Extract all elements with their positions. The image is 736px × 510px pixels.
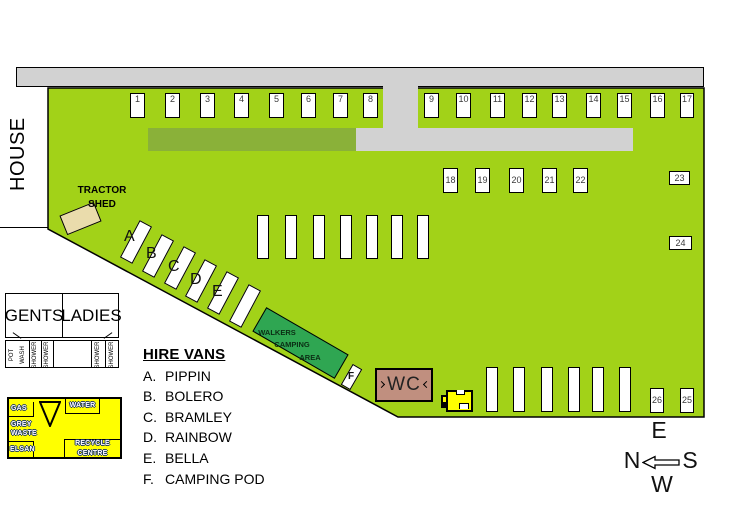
walkers-area-label: CAMPING [272,340,312,349]
pitch-10: 10 [456,93,471,118]
pitch-marker [366,215,378,259]
pitch-20: 20 [509,168,524,193]
pitch-19: 19 [475,168,490,193]
buggy-seat [456,390,465,395]
pitch-9: 9 [424,93,439,118]
pitch-6: 6 [301,93,316,118]
buggy-bed [459,403,469,409]
pitch-2: 2 [165,93,180,118]
elsan-point: ELSAN [9,441,34,457]
tractor-shed-label: TRACTOR SHED [70,184,134,211]
gravel-track [356,128,633,151]
pitch-8: 8 [363,93,378,118]
recycle-label-line1: RECYCLE [75,439,110,448]
compass-top-label: E [645,417,673,444]
shower-label: SHOWER [108,341,116,369]
pot-label: POT [8,341,16,369]
pitch-marker [391,215,403,259]
pitch-14: 14 [586,93,601,118]
pitch-5: 5 [269,93,284,118]
pitch-12: 12 [522,93,537,118]
pitch-marker [417,215,429,259]
pitch-marker [541,367,553,412]
hire-van-letter-f: F [348,371,354,382]
pitch-marker [592,367,604,412]
pitch-marker [486,367,498,412]
ladies-room-label: LADIES [63,294,120,337]
pitch-1: 1 [130,93,145,118]
cubicle-divider [105,341,106,367]
pitch-21: 21 [542,168,557,193]
house-boundary-line [0,227,48,228]
hire-van-letter-c: C [168,258,180,276]
legend-item: A.PIPPIN [143,368,265,384]
gents-room-label: GENTS [6,294,62,337]
pitch-marker [285,215,297,259]
cubicle-row: POT WASH SHOWER SHOWER SHOWER SHOWER [5,340,119,368]
pitch-11: 11 [490,93,505,118]
wc-label: WC [387,374,421,396]
legend-item: E.BELLA [143,450,265,466]
pitch-16: 16 [650,93,665,118]
cubicle-divider [29,341,30,367]
hire-van-letter-e: E [212,283,223,301]
top-road [16,67,704,87]
pitch-15: 15 [617,93,632,118]
legend-item: D.RAINBOW [143,429,265,445]
pitch-4: 4 [234,93,249,118]
shower-label: SHOWER [94,341,102,369]
buggy-icon [441,390,473,412]
hire-vans-legend: HIRE VANS A.PIPPIN B.BOLERO C.BRAMLEY D.… [143,346,265,487]
grey-waste-point: GREY WASTE [11,420,37,439]
house-label: HOUSE [7,121,29,191]
compass-right-label: S [676,447,704,474]
walkers-area-label: WALKERS [257,328,297,337]
pitch-marker [619,367,631,412]
pitch-24: 24 [669,236,692,250]
walkers-area-label: AREA [296,353,324,362]
water-label: WATER [70,401,96,410]
cubicle-divider [53,341,54,367]
water-point: WATER [65,399,100,414]
recycle-centre: RECYCLE CENTRE [64,439,120,457]
pitch-17: 17 [680,93,694,118]
vertical-road [383,85,418,130]
campsite-map: HOUSE TRACTOR SHED 1 2 3 4 5 6 7 8 9 10 … [0,0,736,510]
pitch-18: 18 [443,168,458,193]
pitch-25: 25 [680,388,694,413]
legend-item: C.BRAMLEY [143,409,265,425]
hire-van-letter-a: A [124,228,135,246]
legend-item: F.CAMPING POD [143,471,265,487]
legend-heading: HIRE VANS [143,346,265,363]
hire-van-letter-b: B [146,245,157,263]
door-notch-icon [423,381,430,388]
buggy-wheel [443,402,447,407]
drain-triangle-icon [39,401,61,427]
pitch-marker [568,367,580,412]
toilet-block: GENTS LADIES [5,293,119,338]
gas-label: GAS [11,404,27,413]
pitch-13: 13 [552,93,567,118]
legend-item: B.BOLERO [143,388,265,404]
pitch-7: 7 [333,93,348,118]
wc-block: WC [375,368,433,402]
hire-van-letter-d: D [190,271,202,289]
pitch-marker [257,215,269,259]
elsan-label: ELSAN [10,445,35,454]
utility-block: GAS GREY WASTE ELSAN WATER RECYCLE CENTR… [7,397,122,459]
pitch-3: 3 [200,93,215,118]
pitch-22: 22 [573,168,588,193]
shower-label: SHOWER [31,341,39,369]
grey-label: GREY [11,420,37,429]
pitch-marker [313,215,325,259]
recycle-label-line2: CENTRE [75,449,110,458]
wash-label: WASH [19,341,27,369]
gas-store: GAS [9,402,34,417]
pitch-marker [513,367,525,412]
compass-arrow-icon [642,455,680,470]
cubicle-divider [91,341,92,367]
door-notch-icon [378,381,385,388]
pitch-marker [340,215,352,259]
shower-label: SHOWER [43,341,51,369]
pitch-23: 23 [669,171,690,185]
grass-track [148,128,356,151]
room-divider [62,294,63,337]
cubicle-divider [41,341,42,367]
waste-label: WASTE [11,429,37,438]
pitch-26: 26 [650,388,664,413]
compass-bottom-label: W [648,471,676,498]
